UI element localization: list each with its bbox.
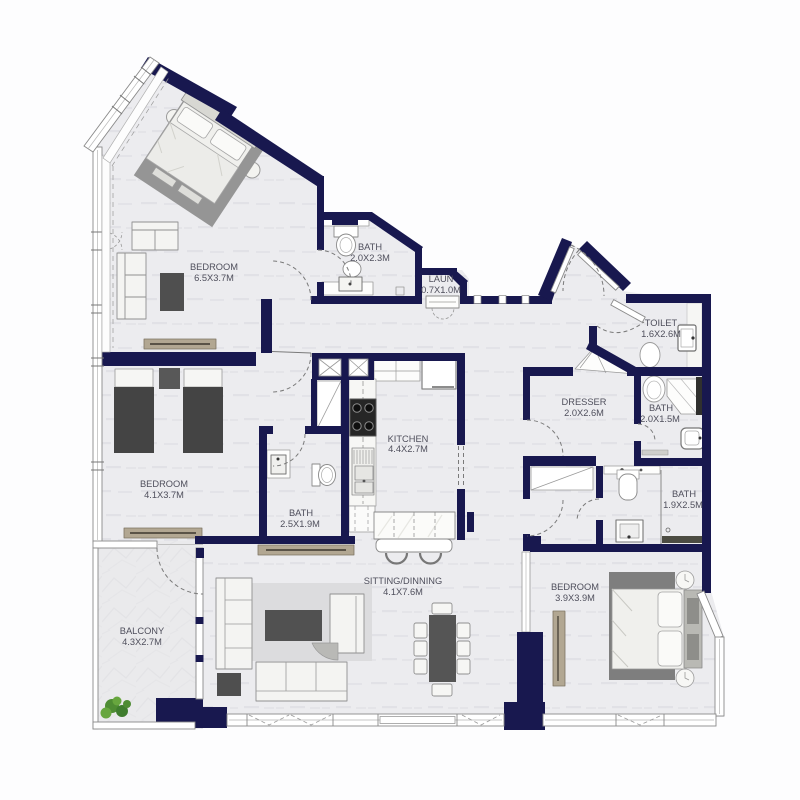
svg-text:2.0X2.3M: 2.0X2.3M	[350, 253, 390, 263]
svg-text:SITTING/DINNING: SITTING/DINNING	[364, 576, 443, 586]
svg-text:2.0X1.5M: 2.0X1.5M	[640, 414, 680, 424]
svg-text:4.1X3.7M: 4.1X3.7M	[144, 490, 184, 500]
svg-text:6.5X3.7M: 6.5X3.7M	[194, 273, 234, 283]
svg-text:LAUN: LAUN	[429, 274, 454, 284]
svg-text:BATH: BATH	[649, 403, 673, 413]
svg-text:2.0X2.6M: 2.0X2.6M	[564, 408, 604, 418]
svg-text:BALCONY: BALCONY	[120, 626, 164, 636]
svg-text:4.1X7.6M: 4.1X7.6M	[383, 587, 423, 597]
svg-text:4.4X2.7M: 4.4X2.7M	[388, 444, 428, 454]
svg-text:1.9X2.5M: 1.9X2.5M	[663, 500, 703, 510]
svg-text:TOILET: TOILET	[645, 318, 678, 328]
svg-text:2.5X1.9M: 2.5X1.9M	[280, 519, 320, 529]
svg-text:3.9X3.9M: 3.9X3.9M	[555, 593, 595, 603]
svg-text:KITCHEN: KITCHEN	[388, 434, 429, 444]
svg-text:BATH: BATH	[672, 489, 696, 499]
svg-text:BATH: BATH	[358, 242, 382, 252]
svg-text:4.3X2.7M: 4.3X2.7M	[122, 637, 162, 647]
svg-text:BEDROOM: BEDROOM	[551, 582, 599, 592]
svg-text:DRESSER: DRESSER	[562, 397, 607, 407]
svg-text:0.7X1.0M: 0.7X1.0M	[421, 285, 461, 295]
svg-text:BEDROOM: BEDROOM	[190, 262, 238, 272]
svg-text:BEDROOM: BEDROOM	[140, 479, 188, 489]
svg-text:BATH: BATH	[289, 508, 313, 518]
svg-text:1.6X2.6M: 1.6X2.6M	[641, 329, 681, 339]
